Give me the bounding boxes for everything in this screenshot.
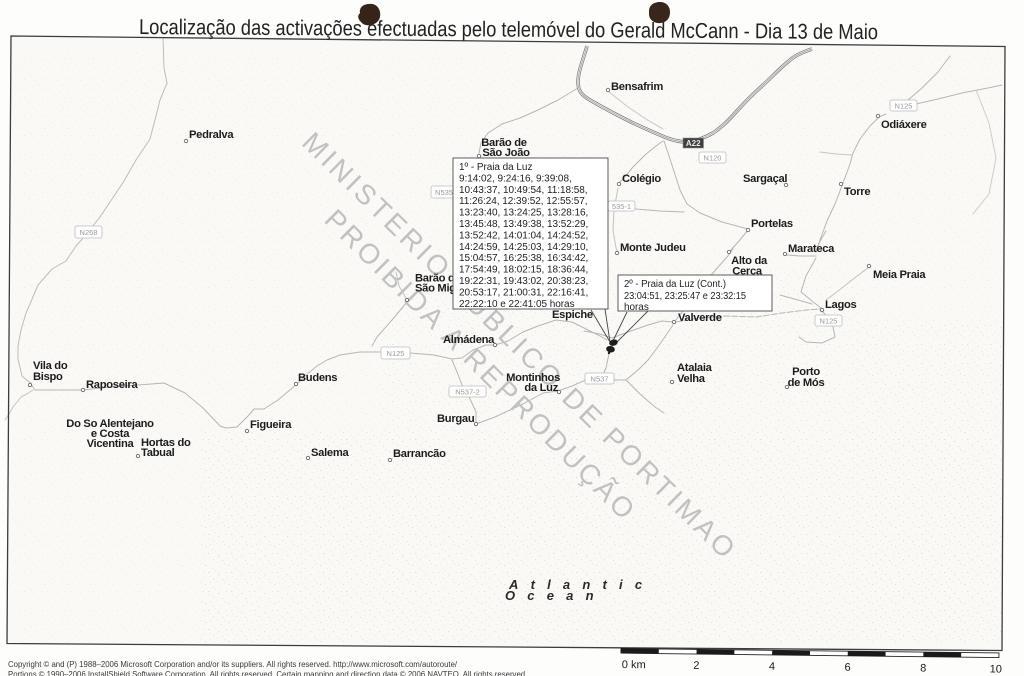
svg-text:Meia Praia: Meia Praia [873,269,926,281]
svg-text:São João: São João [482,147,530,159]
svg-text:1º - Praia da Luz: 1º - Praia da Luz [459,162,532,173]
svg-text:Copyright © and (P) 1988–2006: Copyright © and (P) 1988–2006 Microsoft … [8,660,458,669]
svg-text:Colégio: Colégio [622,173,661,185]
svg-text:13:52:42, 14:01:04, 14:24:52,: 13:52:42, 14:01:04, 14:24:52, [459,230,588,241]
svg-text:20:53:17, 21:00:31, 22:16:41,: 20:53:17, 21:00:31, 22:16:41, [459,287,588,298]
svg-text:Tabual: Tabual [141,447,175,459]
svg-text:6: 6 [844,662,850,674]
svg-text:17:54:49, 18:02:15, 18:36:44,: 17:54:49, 18:02:15, 18:36:44, [459,265,588,276]
svg-text:23:04:51, 23:25:47 e 23:32:15: 23:04:51, 23:25:47 e 23:32:15 [624,291,746,302]
svg-text:Cerca: Cerca [732,266,763,278]
svg-text:da Luz: da Luz [524,382,558,394]
svg-text:2º - Praia da Luz (Cont.): 2º - Praia da Luz (Cont.) [624,279,726,290]
svg-text:N120: N120 [704,154,722,163]
svg-text:Bispo: Bispo [33,371,63,383]
svg-text:19:22:31, 19:43:02, 20:38:23,: 19:22:31, 19:43:02, 20:38:23, [459,276,588,287]
svg-text:9:14:02, 9:24:16, 9:39:08,: 9:14:02, 9:24:16, 9:39:08, [459,173,572,184]
svg-text:N125: N125 [387,349,405,358]
svg-text:4: 4 [769,661,775,673]
svg-text:N125: N125 [820,317,838,326]
svg-text:10: 10 [990,663,1002,675]
svg-text:Odiáxere: Odiáxere [881,119,927,131]
svg-text:A22: A22 [686,139,701,148]
svg-text:Bensafrim: Bensafrim [611,81,663,93]
svg-text:de Mós: de Mós [788,377,825,389]
svg-text:Ocean: Ocean [505,588,606,603]
svg-text:15:04:57, 16:25:38, 16:34:42,: 15:04:57, 16:25:38, 16:34:42, [459,253,588,264]
svg-text:14:24:59, 14:25:03, 14:29:10,: 14:24:59, 14:25:03, 14:29:10, [459,242,588,253]
svg-text:Sargaçal: Sargaçal [743,173,787,185]
svg-text:Velha: Velha [677,373,706,385]
svg-text:Figueira: Figueira [250,419,292,431]
svg-text:Portions © 1990–2006 InstallSh: Portions © 1990–2006 InstallShield Softw… [8,670,527,676]
svg-text:Espiche: Espiche [552,309,593,321]
svg-text:Portelas: Portelas [751,218,793,230]
svg-text:Vicentina: Vicentina [87,438,135,450]
svg-text:N535: N535 [435,188,453,197]
svg-text:Burgau: Burgau [437,413,475,425]
svg-text:0 km: 0 km [622,659,646,671]
svg-text:13:23:40, 13:24:25, 13:28:16,: 13:23:40, 13:24:25, 13:28:16, [459,208,588,219]
svg-text:Raposeira: Raposeira [86,379,138,391]
svg-text:Pedralva: Pedralva [189,129,234,141]
svg-text:11:26:24, 12:39:52, 12:55:57,: 11:26:24, 12:39:52, 12:55:57, [459,196,587,207]
svg-text:horas: horas [624,302,649,313]
svg-text:13:45:48, 13:49:38, 13:52:29,: 13:45:48, 13:49:38, 13:52:29, [459,219,588,230]
svg-text:N537-2: N537-2 [455,388,480,397]
svg-text:8: 8 [920,663,926,675]
svg-text:Monte Judeu: Monte Judeu [620,242,686,254]
svg-text:Budens: Budens [298,372,337,384]
svg-text:N125: N125 [895,102,913,111]
svg-text:Barrancão: Barrancão [393,448,446,460]
svg-text:10:43:37, 10:49:54, 11:18:58,: 10:43:37, 10:49:54, 11:18:58, [459,185,587,196]
svg-text:2: 2 [693,660,699,672]
svg-text:535-1: 535-1 [612,202,631,211]
svg-text:N537: N537 [591,375,609,384]
svg-text:Lagos: Lagos [825,299,857,311]
svg-text:Salema: Salema [311,447,349,459]
svg-text:Almádena: Almádena [443,334,495,346]
svg-text:Marateca: Marateca [788,243,835,255]
svg-text:Valverde: Valverde [678,312,722,324]
svg-text:N268: N268 [80,228,98,237]
svg-text:Torre: Torre [844,186,870,198]
